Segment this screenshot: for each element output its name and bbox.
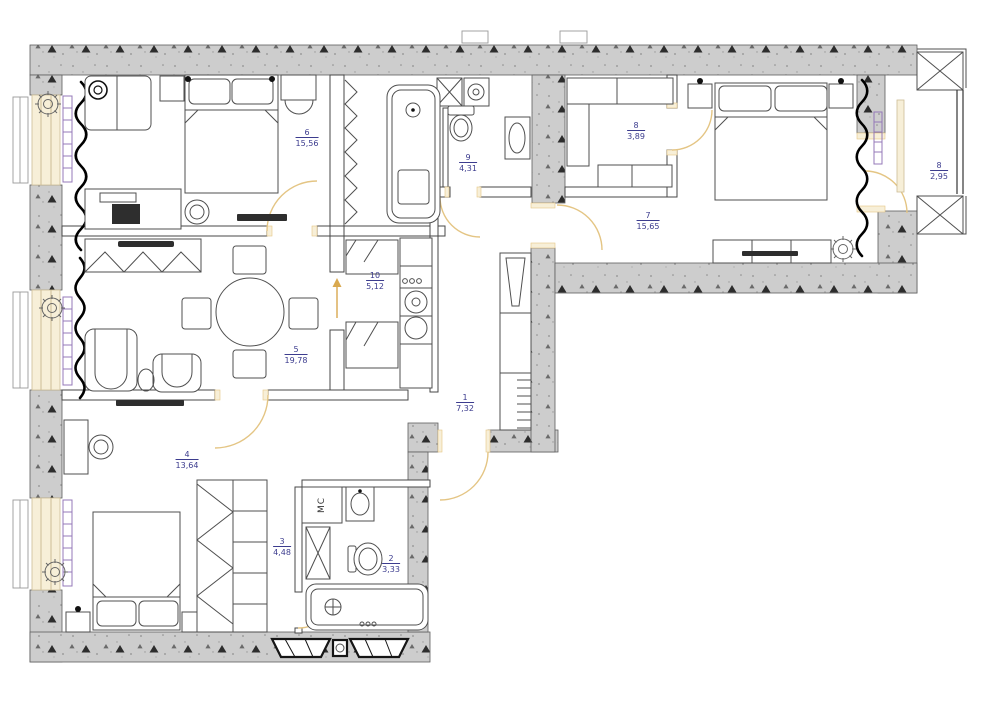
room-area: 7,32 — [456, 403, 474, 413]
room-label-10: 10 5,12 — [366, 271, 384, 291]
bench — [346, 240, 398, 274]
armchair — [85, 329, 137, 391]
chair — [289, 298, 318, 329]
room-number: 3 — [273, 537, 291, 547]
room-number: 4 — [176, 450, 199, 460]
door-arc-bedroom-7 — [557, 205, 602, 250]
balcony-structure — [897, 49, 966, 234]
room-number: 6 — [296, 128, 319, 138]
room-area: 4,48 — [273, 547, 291, 557]
desk — [64, 420, 88, 474]
wall-lamp-icon — [697, 78, 703, 84]
tv — [742, 251, 798, 256]
room-label-7: 7 15,65 — [637, 211, 660, 231]
bathtub — [306, 584, 428, 630]
room-number: 8 — [930, 161, 948, 171]
kitchen-entry-arrow — [333, 278, 342, 318]
wall-lamp-icon — [185, 76, 191, 82]
room-area: 2,95 — [930, 171, 948, 181]
room-area: 15,65 — [637, 221, 660, 231]
room-number: 10 — [366, 271, 384, 281]
stool — [285, 100, 313, 114]
door-arc-closet-8 — [672, 110, 712, 150]
washing-machine-label: МС — [317, 497, 327, 513]
hall-furniture — [500, 253, 531, 430]
room-number: 8 — [627, 121, 645, 131]
room-area: 4,31 — [459, 163, 477, 173]
room-area: 19,78 — [285, 355, 308, 365]
bench — [346, 322, 398, 368]
bedroom-4-furniture — [64, 400, 267, 632]
kitchen-furniture — [346, 238, 432, 388]
nightstand — [160, 76, 184, 101]
shelf-column — [233, 480, 267, 632]
vanity-table — [281, 75, 316, 100]
hall-wardrobe — [500, 253, 531, 430]
radiator-bedroom-6 — [63, 96, 72, 182]
dining-table — [216, 278, 284, 346]
closet-8-shelving — [567, 78, 673, 187]
door-arc-entrance — [440, 452, 488, 500]
room-area: 3,89 — [627, 131, 645, 141]
room-area: 13,64 — [176, 460, 199, 470]
radiator-living — [63, 297, 72, 385]
side-table — [138, 369, 154, 391]
wall-lamp-icon — [269, 76, 275, 82]
room-label-3: 3 4,48 — [273, 537, 291, 557]
chair — [233, 246, 266, 274]
room-label-5: 5 19,78 — [285, 345, 308, 365]
wall-lamp-icon — [75, 606, 81, 612]
tv — [118, 241, 174, 247]
floor-plan: 6 15,56 9 4,31 8 3,89 7 15,65 8 2,95 10 … — [0, 0, 1000, 708]
room-label-1: 1 7,32 — [456, 393, 474, 413]
plant-icon — [830, 236, 856, 262]
room-label-balcony: 8 2,95 — [930, 161, 948, 181]
room-number: 5 — [285, 345, 308, 355]
bathroom-9-fixtures — [387, 78, 530, 223]
door-arc-bathroom-9 — [440, 197, 480, 237]
tv — [237, 214, 287, 221]
floor-plan-drawing — [0, 0, 1000, 708]
exterior-shafts — [272, 639, 408, 657]
room-number: 9 — [459, 153, 477, 163]
room-label-6: 6 15,56 — [296, 128, 319, 148]
room-label-2: 2 3,33 — [382, 554, 400, 574]
wardrobe — [197, 480, 233, 632]
bathtub — [387, 85, 440, 223]
bedroom-7-furniture — [688, 78, 853, 263]
radiator-bedroom-4 — [63, 500, 72, 586]
nightstand — [688, 84, 712, 108]
room-area: 3,33 — [382, 564, 400, 574]
nightstand — [66, 612, 90, 632]
nightstand — [829, 84, 853, 108]
desk-chair — [89, 435, 113, 459]
living-room-furniture — [85, 239, 318, 392]
room-area: 5,12 — [366, 281, 384, 291]
door-arc-bedroom-4 — [215, 395, 268, 448]
desk-chair — [185, 200, 209, 224]
room-label-9: 9 4,31 — [459, 153, 477, 173]
room-number: 2 — [382, 554, 400, 564]
chair — [182, 298, 211, 329]
room-area: 15,56 — [296, 138, 319, 148]
room-label-4: 4 13,64 — [176, 450, 199, 470]
room-number: 7 — [637, 211, 660, 221]
room-number: 1 — [456, 393, 474, 403]
room-label-8: 8 3,89 — [627, 121, 645, 141]
chair — [233, 350, 266, 378]
curtain-living — [76, 258, 85, 398]
toilet-tank — [448, 106, 474, 115]
wall-lamp-icon — [838, 78, 844, 84]
tv — [116, 400, 184, 406]
wardrobe-folding-doors — [345, 80, 357, 224]
armchair — [153, 354, 201, 392]
bedroom-6-furniture — [85, 75, 357, 229]
